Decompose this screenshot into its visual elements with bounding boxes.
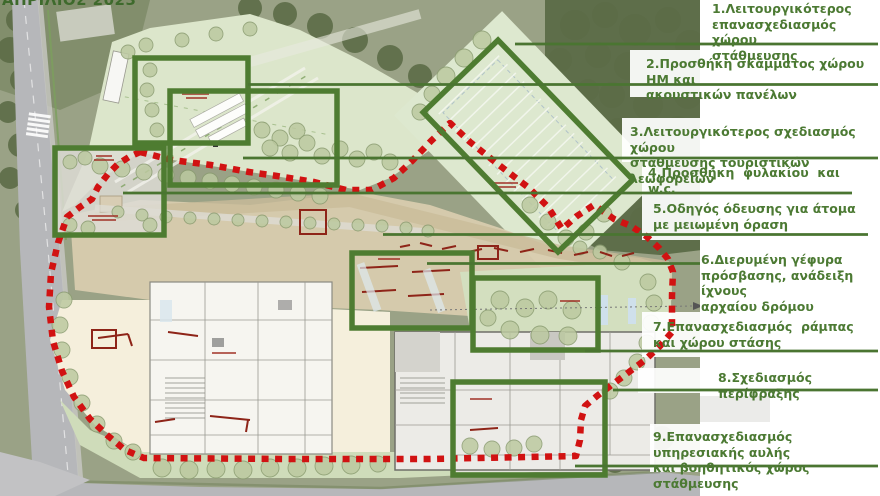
tree (559, 327, 577, 345)
tree (273, 2, 297, 26)
callout-label-2: 2.Προσθήκη σκάμματος χώρου ΗΜ και ακουστ… (646, 56, 880, 103)
callout-label-6: 6.Διερυμένη γέφυρα πρόσβασης, ανάδειξη ί… (701, 252, 880, 314)
tree (382, 154, 398, 170)
callout-label-1: 1.Λειτουργικότερος επανασχεδιασμός χώρου… (712, 1, 880, 63)
tree (143, 218, 157, 232)
tree (614, 254, 630, 270)
tree (491, 291, 509, 309)
tree (143, 63, 157, 77)
plan-annotation-text-mark (96, 155, 112, 157)
tree (180, 461, 198, 479)
tree (376, 220, 388, 232)
plan-annotation-text-mark (378, 258, 400, 260)
callout-label-9: 9.Επανασχεδιασμός υπηρεσιακής αυλής και … (653, 429, 880, 491)
plan-annotation-text-mark (94, 159, 114, 161)
tree (139, 38, 153, 52)
tree (539, 291, 557, 309)
tree (526, 436, 542, 452)
tree (619, 14, 651, 46)
tree (462, 438, 478, 454)
tree (184, 212, 196, 224)
tree (78, 151, 92, 165)
tree (312, 188, 328, 204)
title-date: ΑΠΡΙΛΙΟΣ 2023 (2, 0, 136, 9)
tree (585, 42, 611, 68)
tree (640, 274, 656, 290)
tree (150, 123, 164, 137)
tree (352, 219, 364, 231)
callout-label-4: 4.Προσθήκη φυλακίου και w.c. (648, 165, 860, 196)
tree (531, 326, 549, 344)
plan-annotation-text-mark (186, 97, 207, 99)
tree (243, 22, 257, 36)
tree (63, 155, 77, 169)
tree (501, 321, 519, 339)
tree (208, 213, 220, 225)
tree (256, 215, 268, 227)
tree (140, 83, 154, 97)
tree (314, 148, 330, 164)
site-plan-page: ΑΠΡΙΛΙΟΣ 2023 1.Λειτουργικότερος επανασχ… (0, 0, 880, 496)
plan-annotation-text-mark (470, 398, 492, 400)
tree (56, 292, 72, 308)
callout-label-5: 5.Οδηγός όδευσης για άτομα με μειωμένη ό… (653, 201, 878, 232)
plan-annotation-text-mark (560, 300, 580, 302)
tree (377, 45, 403, 71)
tree (136, 164, 152, 180)
tree (299, 135, 315, 151)
tree (153, 459, 171, 477)
tree (175, 33, 189, 47)
tree (400, 222, 412, 234)
tree (646, 295, 662, 311)
tree (145, 103, 159, 117)
plan-annotation-text-mark (92, 219, 116, 221)
plan-annotation-text-mark (212, 352, 236, 354)
tree (254, 122, 270, 138)
callout-label-8: 8.Σχεδιασμός περίφραξης (718, 370, 880, 401)
tree (328, 218, 340, 230)
tree (480, 310, 496, 326)
tree (563, 301, 581, 319)
tree (655, 7, 681, 33)
tree (506, 440, 522, 456)
tree (592, 2, 618, 28)
tree (262, 140, 278, 156)
plan-annotation-text-mark (88, 215, 118, 217)
tree (522, 197, 538, 213)
tree (560, 10, 590, 40)
tree (232, 214, 244, 226)
tree (234, 461, 252, 479)
tree (207, 460, 225, 478)
tree (209, 27, 223, 41)
museum-building-left (150, 282, 332, 454)
tree (304, 217, 316, 229)
tree (280, 216, 292, 228)
callout-label-7: 7.Επανασχεδιασμός ράμπας και χώρου στάση… (653, 319, 880, 350)
